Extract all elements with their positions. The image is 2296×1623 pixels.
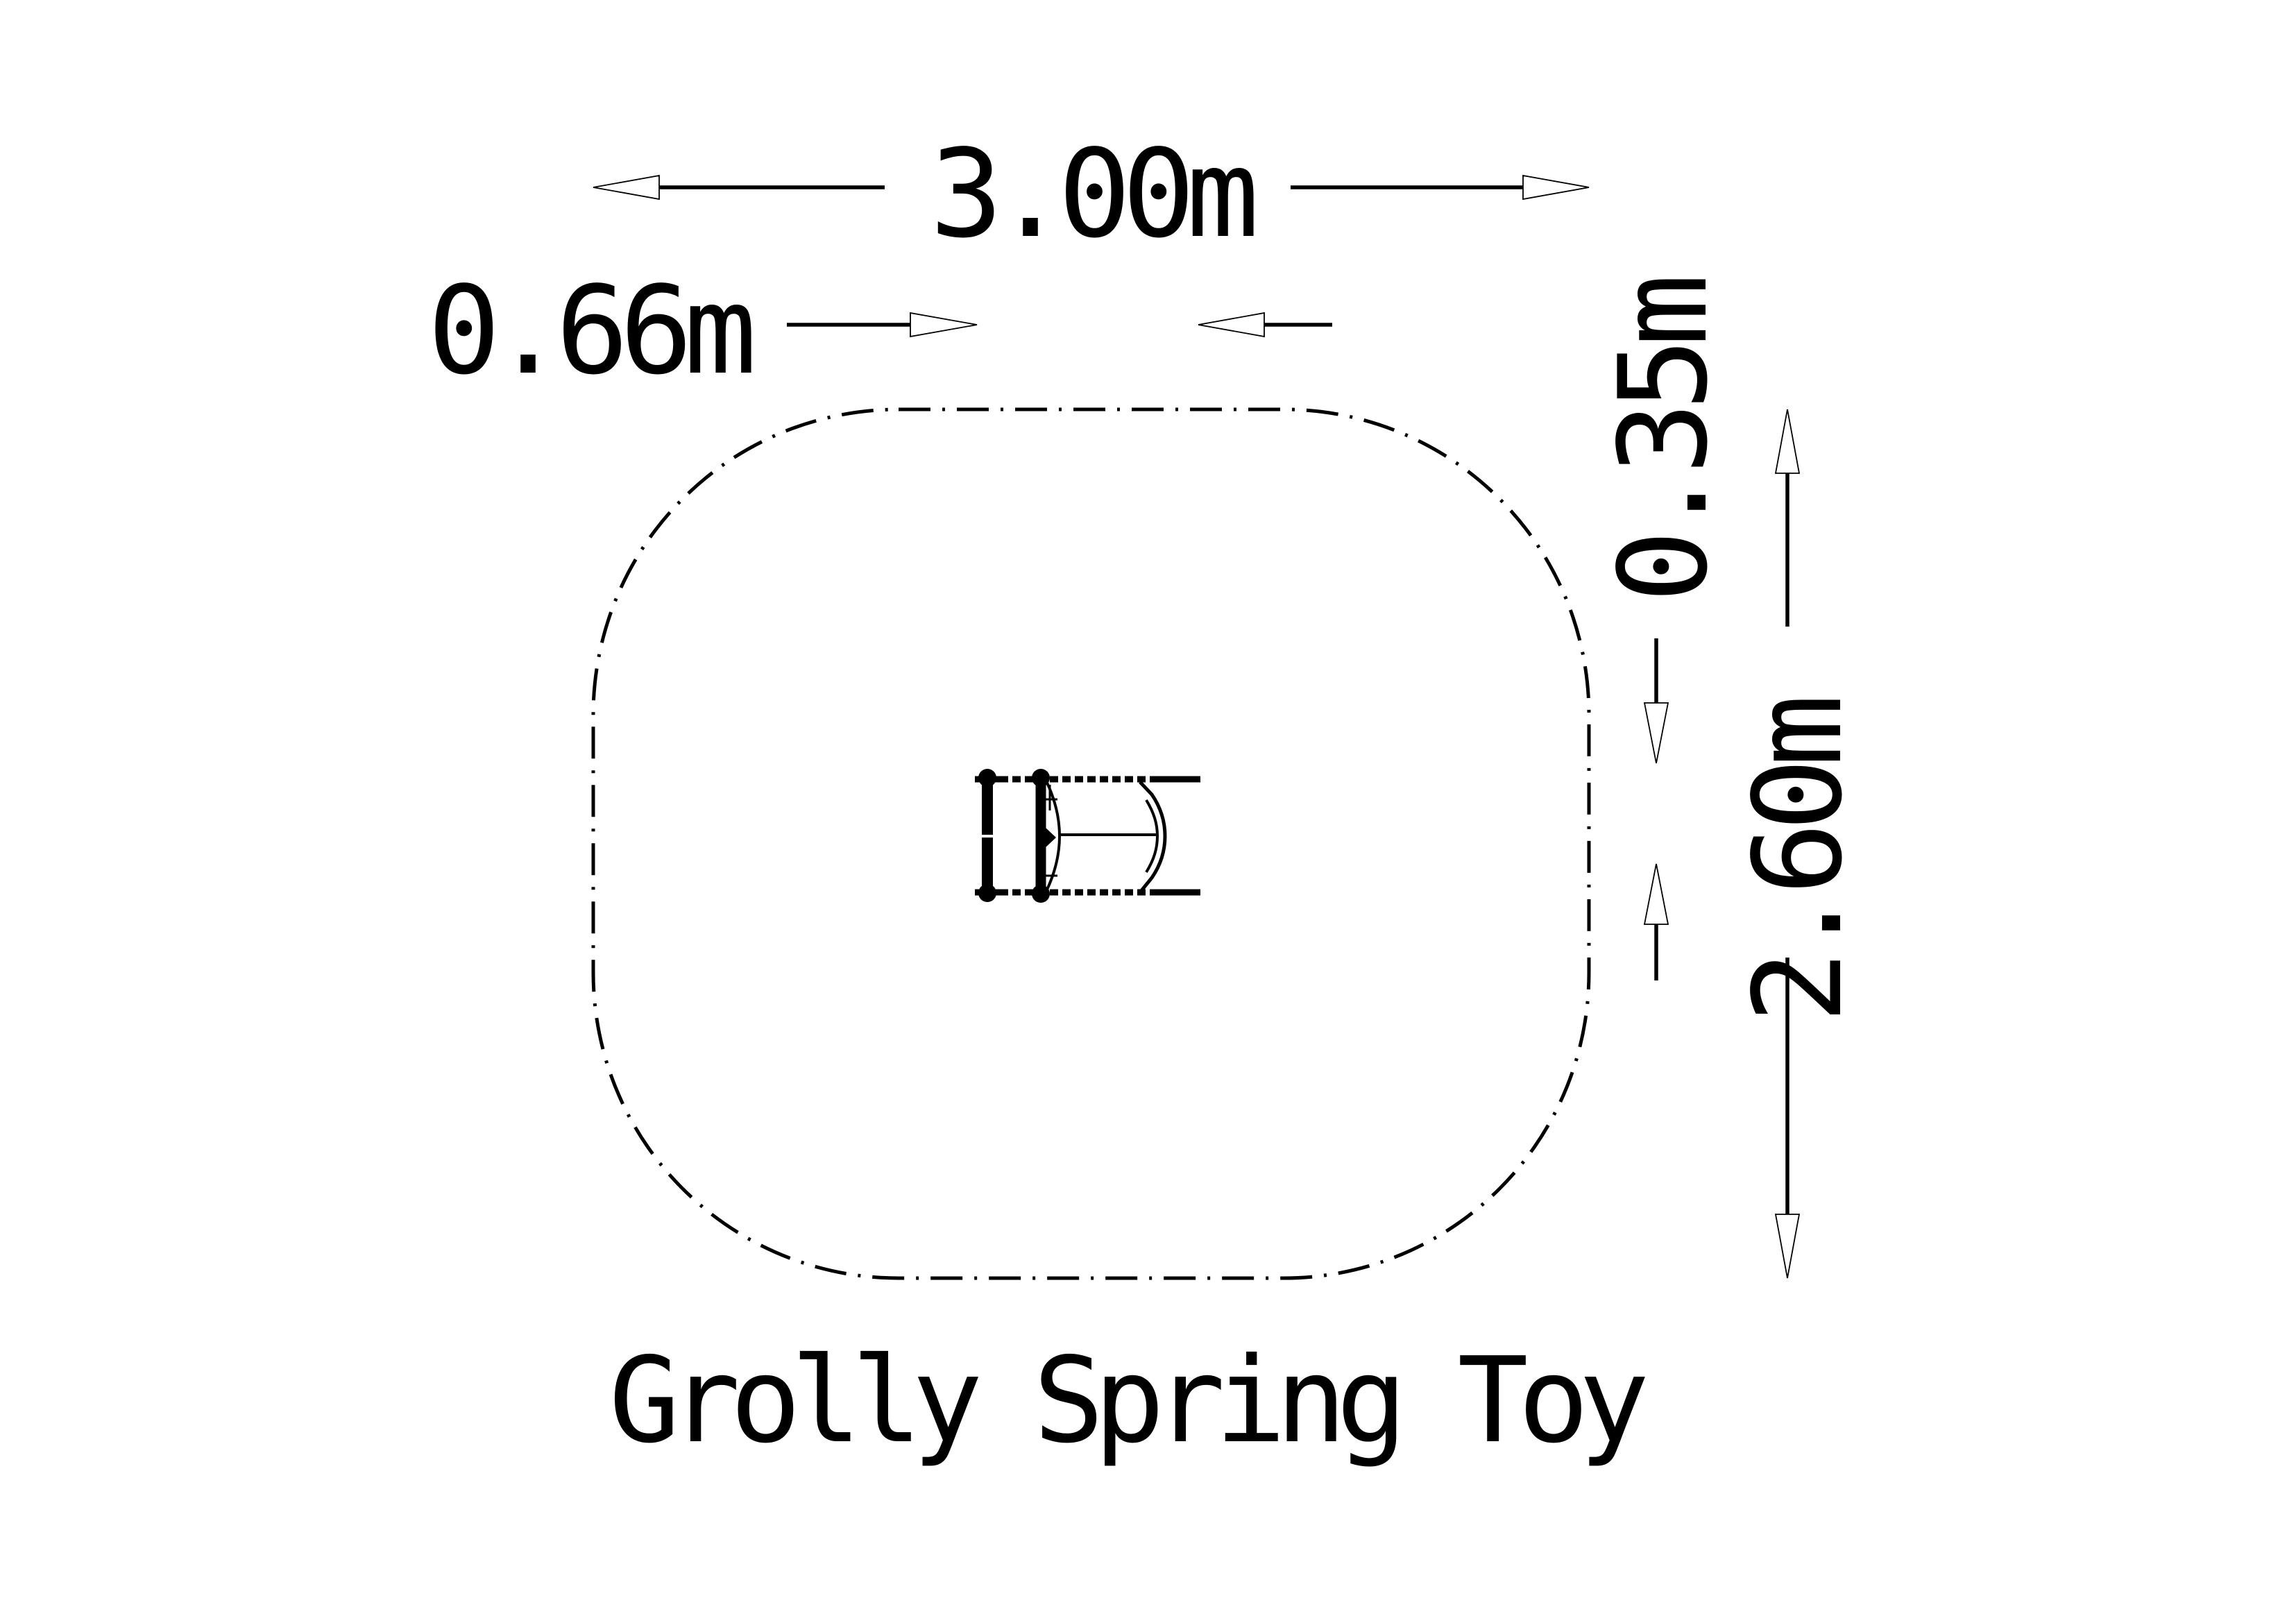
dimension-toy-width: 0.35m: [1594, 279, 1735, 980]
drawing-title: Grolly Spring Toy: [609, 1332, 1646, 1470]
dimension-zone-depth: 2.60m: [1728, 409, 1869, 1278]
toy-backrest-outer-arc: [1140, 782, 1165, 892]
arrowhead-left-icon: [1198, 313, 1264, 337]
safety-zone-boundary: [593, 409, 1589, 1278]
arrowhead-right-icon: [910, 313, 977, 337]
spring-toy-top-view: [975, 769, 1200, 903]
dimension-label-toy-width: 0.35m: [1594, 279, 1735, 602]
dimension-label-zone-depth: 2.60m: [1728, 699, 1869, 1023]
arrowhead-up-icon: [1644, 864, 1668, 924]
drawing-canvas: 3.00m 0.66m 0.35m 2.60m: [0, 0, 2296, 1623]
arrowhead-right-icon: [1523, 176, 1589, 199]
arrowhead-left-icon: [593, 176, 659, 199]
toy-handlebar-knob-bottom: [978, 884, 996, 902]
arrowhead-up-icon: [1776, 409, 1799, 473]
dimension-label-toy-length: 0.66m: [427, 261, 751, 402]
dimension-toy-length: 0.66m: [427, 261, 1332, 402]
toy-handlebar-knob-top: [978, 769, 996, 787]
dimension-zone-width: 3.00m: [593, 124, 1589, 265]
arrowhead-down-icon: [1776, 1214, 1799, 1278]
arrowhead-down-icon: [1644, 703, 1668, 763]
dimension-label-zone-width: 3.00m: [930, 124, 1253, 265]
toy-spring-anchor: [1045, 827, 1056, 848]
drawing-sheet: 3.00m 0.66m 0.35m 2.60m: [0, 0, 2296, 1623]
